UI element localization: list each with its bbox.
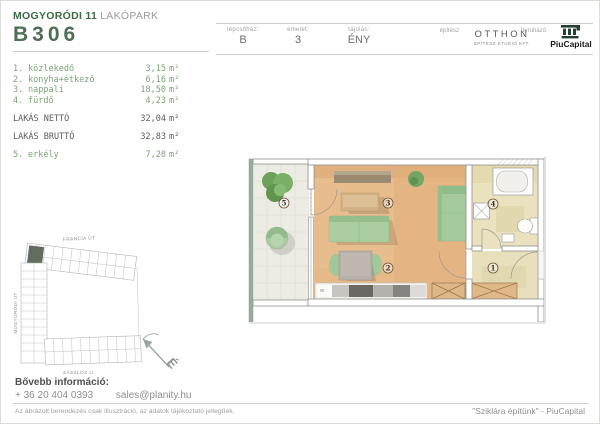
- footer-divider: [13, 403, 589, 404]
- room-name: közlekedő: [28, 64, 132, 75]
- sofa: [329, 216, 398, 245]
- site-map-bottom-wing: [45, 336, 142, 365]
- room-unit: m²: [166, 75, 185, 86]
- street-francia: FRANCIA ÚT: [63, 234, 96, 243]
- room-row: 2. konyha+étkező 6,16 m²: [13, 75, 185, 86]
- developer-name: PiuCapital: [550, 39, 592, 49]
- north-compass: É: [133, 331, 189, 383]
- unit-info-table: lépcsőház: B emelet: 3 tájolás: ÉNY épít…: [216, 23, 593, 55]
- sink: [502, 234, 514, 242]
- project-title: MOGYORÓDI 11LAKÓPARK: [13, 10, 158, 22]
- tv-cabinet: [334, 171, 391, 183]
- room-area: 7,28: [132, 150, 166, 161]
- bathtub: [493, 168, 533, 195]
- orientation-label: tájolás:: [334, 27, 384, 33]
- label-balcony: 5: [282, 198, 287, 207]
- project-name: MOGYORÓDI 11: [13, 10, 97, 22]
- balcony-window: [309, 217, 314, 299]
- architect-subtitle: ÉPÍTÉSZ STÚDIÓ KFT.: [462, 41, 542, 46]
- contact-row: + 36 20 404 0393 sales@planity.hu: [15, 390, 191, 401]
- phone-number: + 36 20 404 0393: [15, 390, 93, 401]
- street-zaszlos: ZÁSZLÓS U.: [63, 369, 95, 376]
- total-name: LAKÁS NETTÓ: [13, 114, 132, 125]
- piucapital-icon: [559, 25, 583, 39]
- room-area: 18,50: [132, 85, 166, 96]
- floor-plan: 5 3 2 4 1: [244, 148, 546, 332]
- floorplan-sheet: MOGYORÓDI 11LAKÓPARK B306 lépcsőház: B e…: [0, 0, 600, 424]
- floor-label: emelet:: [275, 27, 321, 33]
- street-mogyorodi: MOGYORÓDI ÚT: [12, 292, 18, 333]
- wardrobe: [432, 283, 517, 299]
- developer-logo: PiuCapital: [550, 25, 592, 49]
- room-area: 3,15: [132, 64, 166, 75]
- company-slogan: "Sziklára építünk" - PiuCapital: [472, 406, 585, 416]
- compass-letter: É: [164, 355, 181, 372]
- room-unit: m²: [166, 85, 185, 96]
- room-num: 5.: [13, 150, 28, 161]
- room-area: 4,23: [132, 96, 166, 107]
- bed: [438, 186, 466, 241]
- room-num: 1.: [13, 64, 28, 75]
- site-map-left-wing: [21, 263, 47, 363]
- staircase-label: lépcsőház:: [220, 27, 266, 33]
- entrance-threshold: [538, 251, 544, 279]
- label-hall: 1: [491, 263, 496, 272]
- staircase-value: B: [220, 34, 266, 46]
- developer-label: beruházó: [508, 28, 546, 34]
- room-row: 4. fürdő 4,23 m²: [13, 96, 185, 107]
- total-unit: m²: [166, 132, 185, 143]
- floor-value: 3: [275, 34, 321, 46]
- orientation-value: ÉNY: [334, 34, 384, 46]
- total-unit: m²: [166, 114, 185, 125]
- label-bathroom: 4: [491, 199, 496, 208]
- outer-edge-right: [544, 157, 546, 324]
- total-area: 32,83: [132, 132, 166, 143]
- room-row: 3. nappali 18,50 m²: [13, 85, 185, 96]
- total-name: LAKÁS BRUTTÓ: [13, 132, 132, 143]
- room-unit: m²: [166, 150, 185, 161]
- plant: [408, 171, 424, 187]
- toilet: [518, 218, 539, 234]
- room-name: fürdő: [28, 96, 132, 107]
- disclaimer-text: Az ábrázolt berendezés csak illusztráció…: [15, 408, 235, 415]
- orientation-cell: tájolás: ÉNY: [334, 27, 384, 46]
- kitchen-counter: [315, 283, 427, 299]
- room-unit: m²: [166, 96, 185, 107]
- balcony-row: 5. erkély 7,28 m²: [13, 150, 185, 161]
- highlighted-unit: [27, 245, 44, 265]
- outer-edge-bottom: [249, 322, 546, 324]
- room-name: nappali: [28, 85, 132, 96]
- label-kitchen: 2: [386, 263, 391, 272]
- project-suffix: LAKÓPARK: [100, 10, 158, 22]
- total-gross-row: LAKÁS BRUTTÓ 32,83 m²: [13, 132, 185, 143]
- room-list: 1. közlekedő 3,15 m² 2. konyha+étkező 6,…: [13, 64, 185, 160]
- email-address: sales@planity.hu: [116, 390, 192, 401]
- total-net-row: LAKÁS NETTÓ 32,04 m²: [13, 114, 185, 125]
- info-heading: Bővebb információ:: [15, 377, 109, 388]
- room-num: 3.: [13, 85, 28, 96]
- room-num: 2.: [13, 75, 28, 86]
- room-name: erkély: [28, 150, 132, 161]
- label-living: 3: [386, 198, 391, 207]
- architect-label: építész: [419, 28, 459, 34]
- room-num: 4.: [13, 96, 28, 107]
- room-row: 1. közlekedő 3,15 m²: [13, 64, 185, 75]
- washing-machine: [474, 203, 490, 219]
- room-area: 6,16: [132, 75, 166, 86]
- staircase-cell: lépcsőház: B: [220, 27, 266, 46]
- floor-cell: emelet: 3: [275, 27, 321, 46]
- room-unit: m²: [166, 64, 185, 75]
- balcony-railing: [249, 159, 253, 322]
- unit-id: B306: [13, 23, 209, 52]
- room-name: konyha+étkező: [28, 75, 132, 86]
- total-area: 32,04: [132, 114, 166, 125]
